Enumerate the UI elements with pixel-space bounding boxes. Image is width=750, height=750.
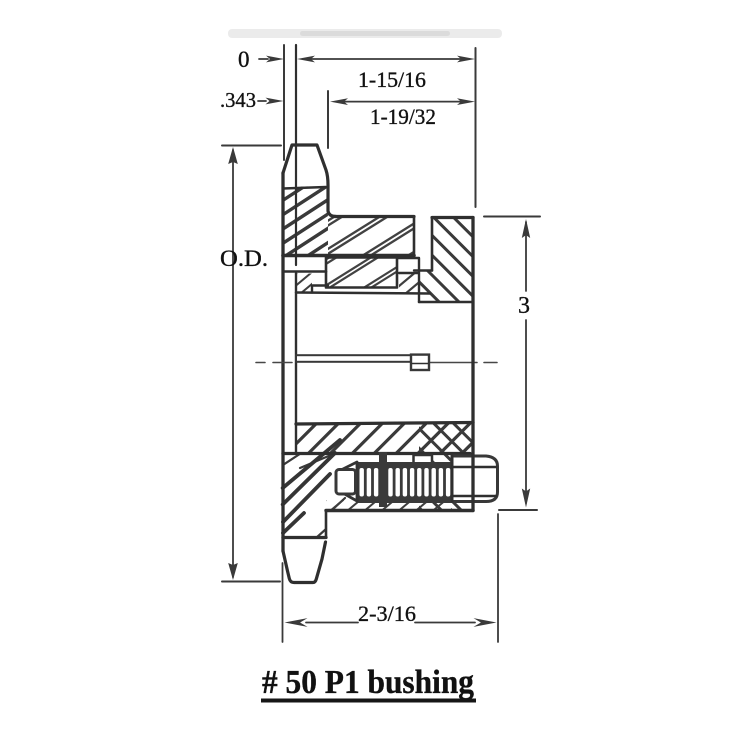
svg-text:O.D.: O.D. [220,246,268,271]
svg-text:0: 0 [238,47,250,72]
svg-text:1-15/16: 1-15/16 [358,67,426,92]
svg-text:2-3/16: 2-3/16 [358,601,416,626]
svg-text:1-19/32: 1-19/32 [370,104,436,129]
svg-text:.343: .343 [220,88,256,112]
svg-text:# 50 P1 bushing: # 50 P1 bushing [262,664,474,701]
svg-text:3: 3 [518,293,530,319]
